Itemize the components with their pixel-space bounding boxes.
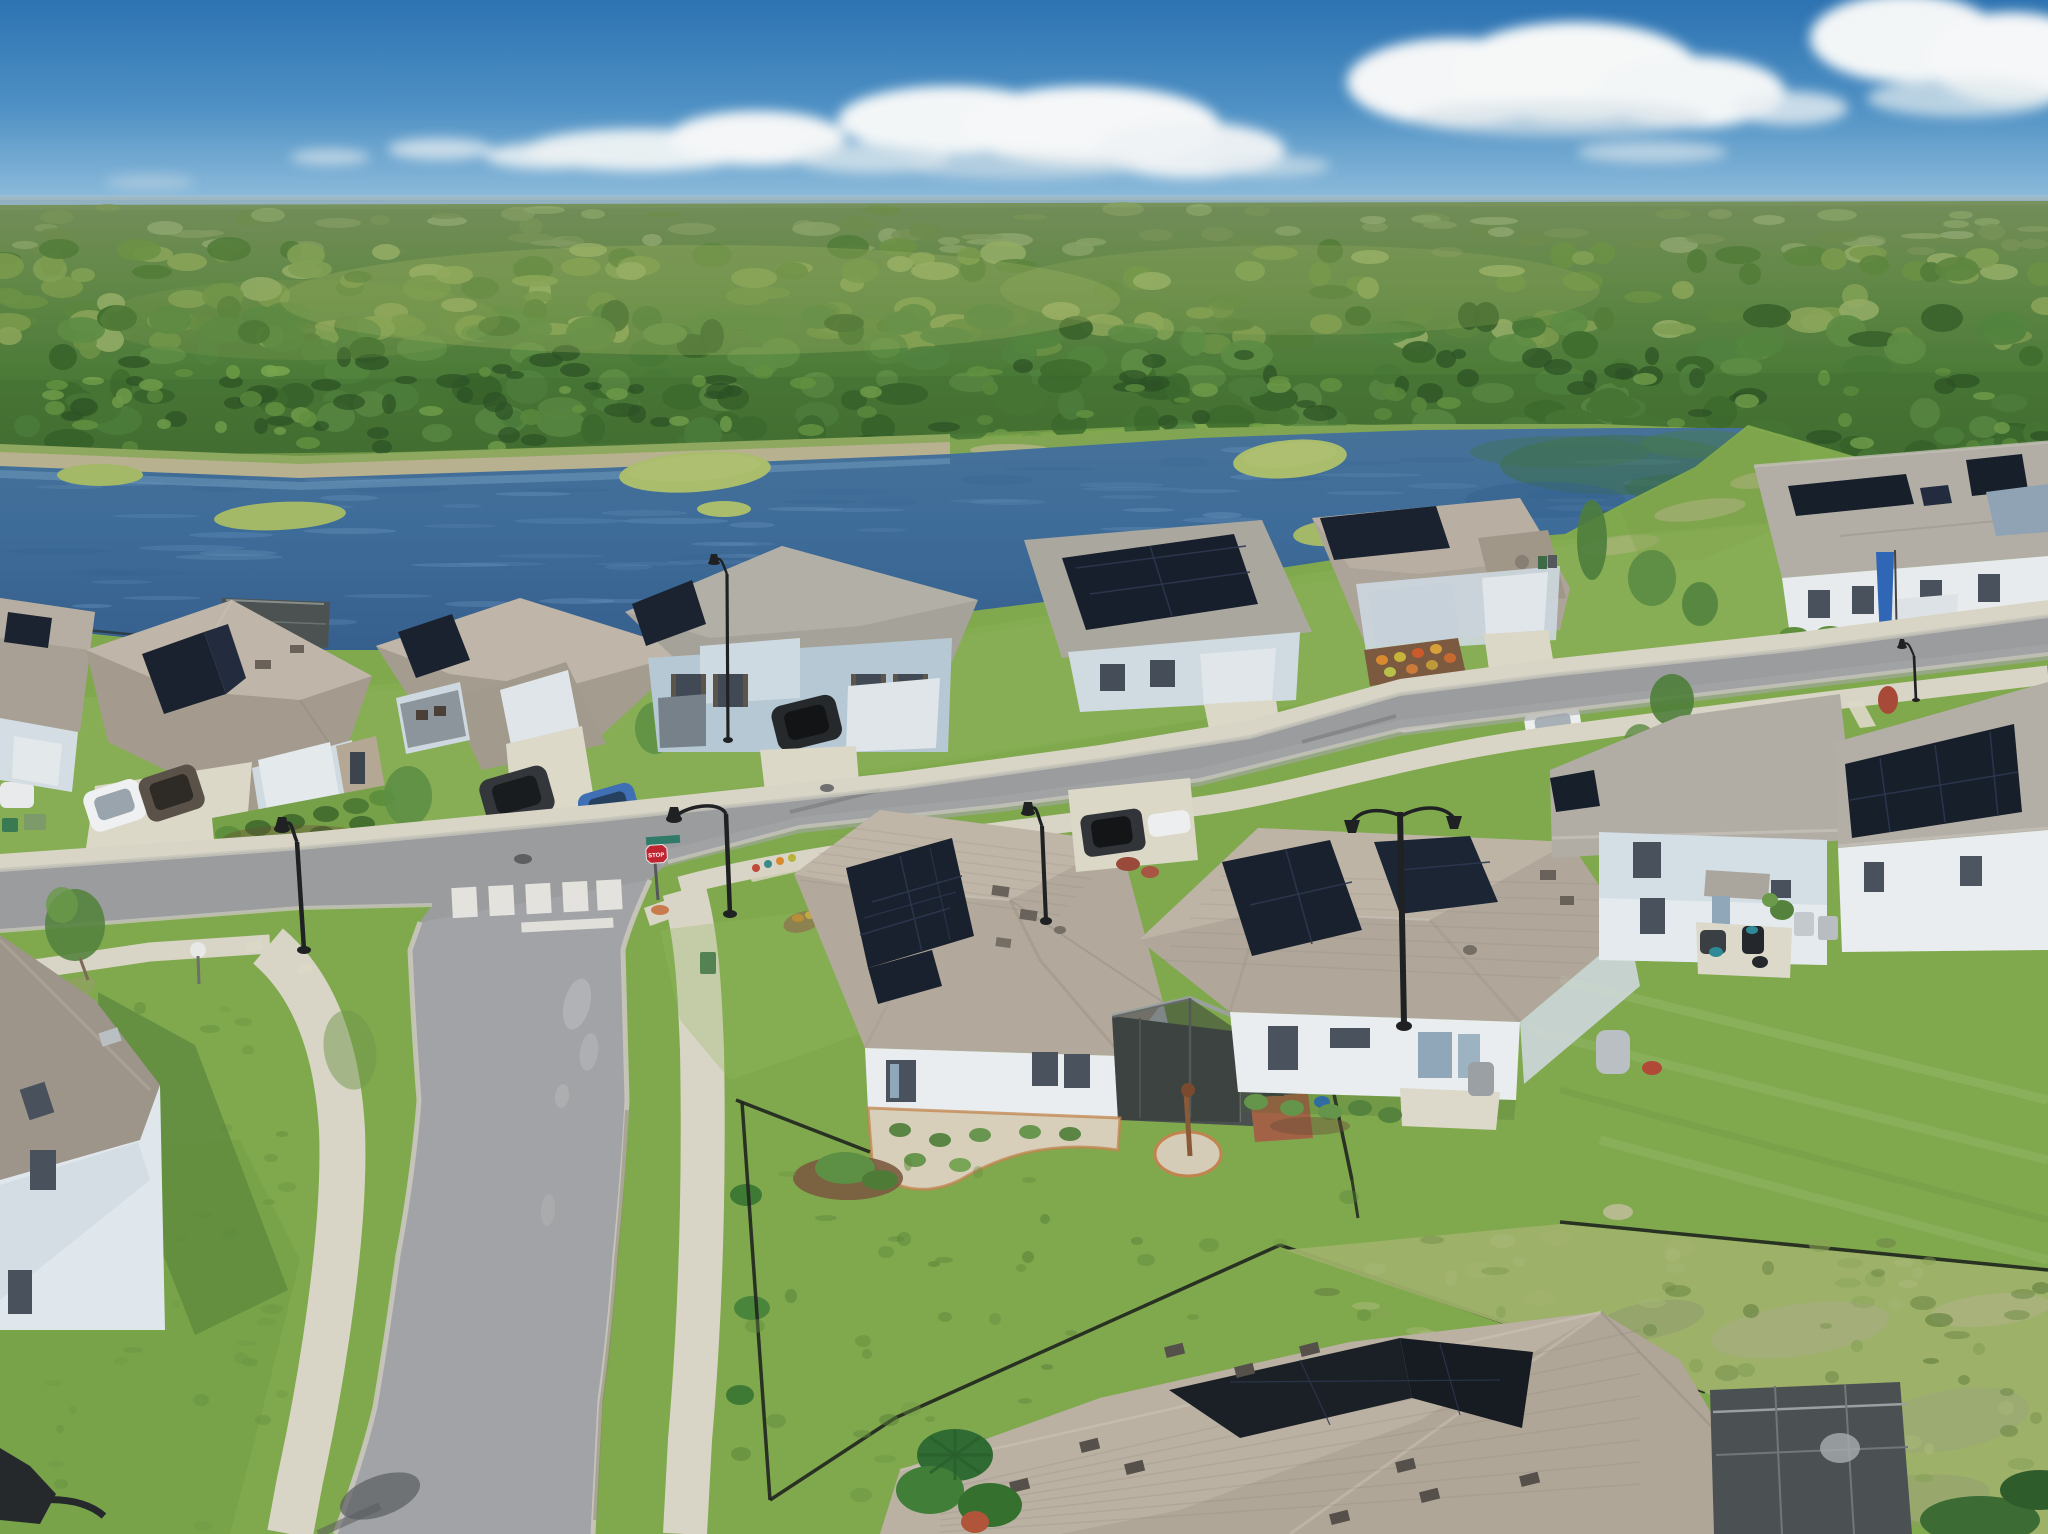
svg-text:STOP: STOP bbox=[648, 852, 665, 859]
